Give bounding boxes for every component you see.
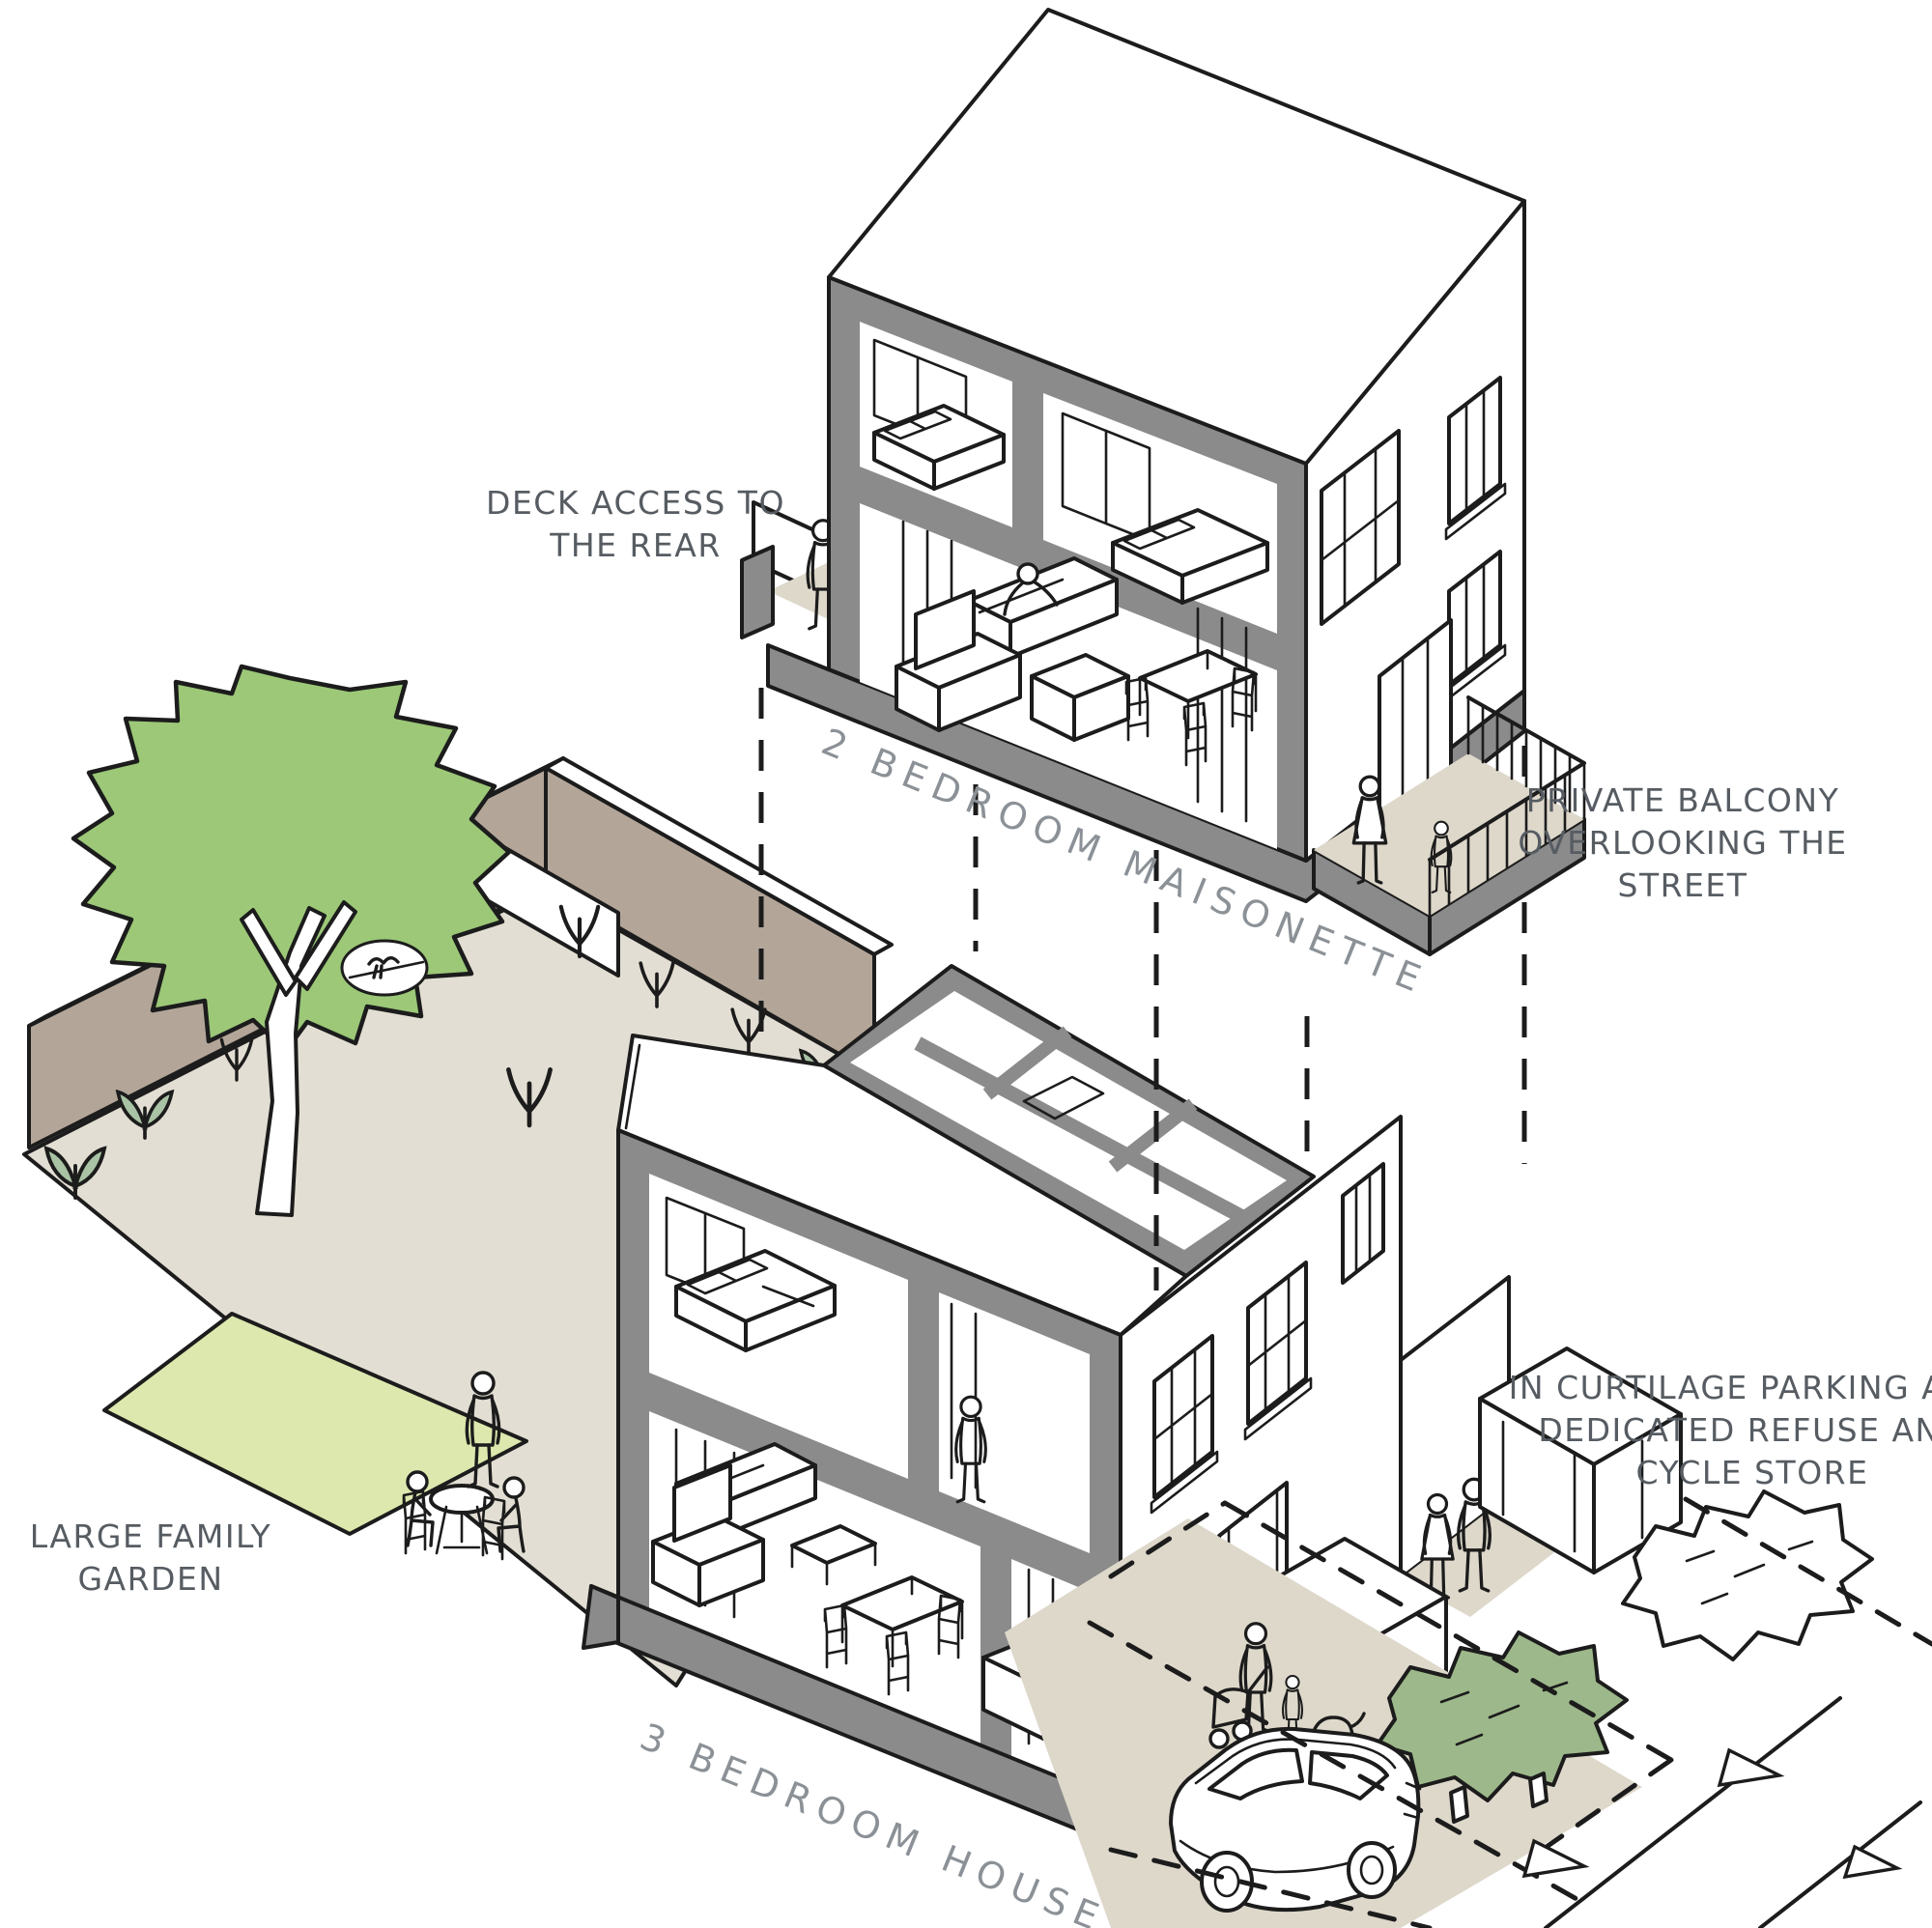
kerb-tick <box>1845 1847 1897 1877</box>
svg-text:PRIVATE BALCONY: PRIVATE BALCONY <box>1526 781 1840 819</box>
svg-text:THE REAR: THE REAR <box>549 526 722 564</box>
svg-text:IN CURTILAGE PARKING AND: IN CURTILAGE PARKING AND <box>1509 1369 1932 1406</box>
svg-text:DEDICATED REFUSE AND: DEDICATED REFUSE AND <box>1538 1411 1932 1449</box>
label-deck-access: DECK ACCESS TO THE REAR <box>486 484 785 564</box>
svg-text:CYCLE STORE: CYCLE STORE <box>1636 1454 1869 1491</box>
tree-bird-notch <box>342 941 427 995</box>
axonometric-drawing: DECK ACCESS TO THE REAR 2 BEDROOM MAISON… <box>0 0 1932 1928</box>
svg-text:DECK ACCESS TO: DECK ACCESS TO <box>486 484 785 522</box>
label-private-balcony: PRIVATE BALCONY OVERLOOKING THE STREET <box>1518 781 1847 904</box>
label-large-family-garden: LARGE FAMILY GARDEN <box>30 1517 271 1598</box>
diagram-canvas: DECK ACCESS TO THE REAR 2 BEDROOM MAISON… <box>0 0 1932 1928</box>
deck-parapet <box>742 547 773 638</box>
svg-text:GARDEN: GARDEN <box>77 1560 223 1598</box>
kerb-line <box>1760 1802 1920 1928</box>
svg-text:STREET: STREET <box>1618 866 1748 904</box>
kerb-tick <box>1719 1750 1779 1785</box>
svg-text:LARGE FAMILY: LARGE FAMILY <box>30 1517 271 1555</box>
kerb-tick <box>1524 1841 1584 1876</box>
svg-text:OVERLOOKING THE: OVERLOOKING THE <box>1518 824 1847 862</box>
maisonette <box>742 10 1584 954</box>
